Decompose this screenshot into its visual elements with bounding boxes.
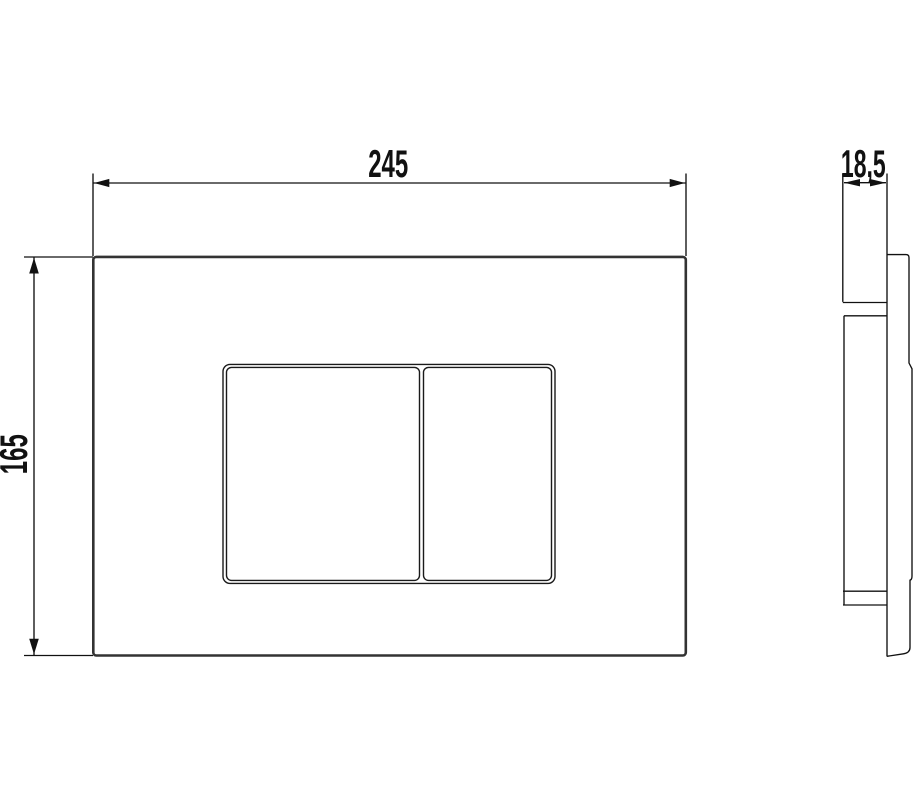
svg-text:18,5: 18,5 (841, 142, 886, 186)
svg-text:245: 245 (368, 142, 408, 185)
svg-text:165: 165 (0, 434, 35, 474)
